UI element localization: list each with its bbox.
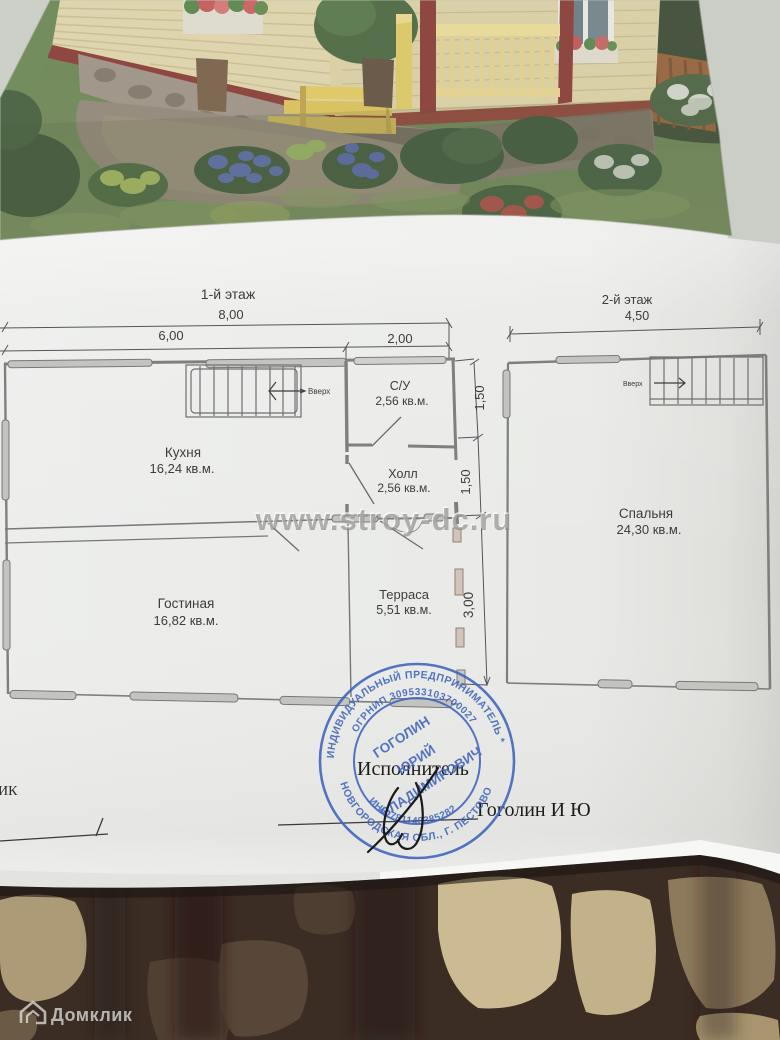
svg-text:www.stroy-dc.ru: www.stroy-dc.ru bbox=[255, 502, 513, 537]
svg-text:Кухня: Кухня bbox=[165, 445, 201, 460]
svg-text:4,50: 4,50 bbox=[625, 309, 649, 323]
svg-text:Спальня: Спальня bbox=[619, 506, 673, 521]
svg-text:ИК: ИК bbox=[0, 784, 18, 799]
svg-text:1-й этаж: 1-й этаж bbox=[201, 286, 256, 302]
svg-text:8,00: 8,00 bbox=[218, 307, 243, 322]
svg-text:3,00: 3,00 bbox=[461, 592, 476, 618]
svg-text:Вверх: Вверх bbox=[308, 387, 330, 396]
svg-text:Терраса: Терраса bbox=[379, 587, 430, 602]
svg-text:6,00: 6,00 bbox=[158, 328, 183, 343]
svg-text:2,56 кв.м.: 2,56 кв.м. bbox=[377, 481, 430, 495]
svg-text:1,50: 1,50 bbox=[458, 469, 473, 494]
svg-text:Домклик: Домклик bbox=[51, 1005, 133, 1025]
svg-text:Холл: Холл bbox=[388, 467, 417, 481]
svg-text:24,30 кв.м.: 24,30 кв.м. bbox=[617, 522, 682, 537]
svg-text:2,56 кв.м.: 2,56 кв.м. bbox=[375, 394, 428, 408]
svg-text:С/У: С/У bbox=[390, 379, 411, 393]
svg-text:2,00: 2,00 bbox=[387, 331, 412, 346]
svg-text:Вверх: Вверх bbox=[623, 381, 643, 388]
svg-text:16,82 кв.м.: 16,82 кв.м. bbox=[154, 613, 219, 628]
svg-text:Гостиная: Гостиная bbox=[158, 596, 215, 611]
svg-text:5,51 кв.м.: 5,51 кв.м. bbox=[376, 603, 431, 617]
svg-text:Гоголин И Ю: Гоголин И Ю bbox=[477, 799, 591, 821]
svg-text:16,24 кв.м.: 16,24 кв.м. bbox=[150, 461, 215, 476]
svg-text:2-й этаж: 2-й этаж bbox=[602, 292, 653, 307]
svg-text:1,50: 1,50 bbox=[472, 385, 487, 410]
